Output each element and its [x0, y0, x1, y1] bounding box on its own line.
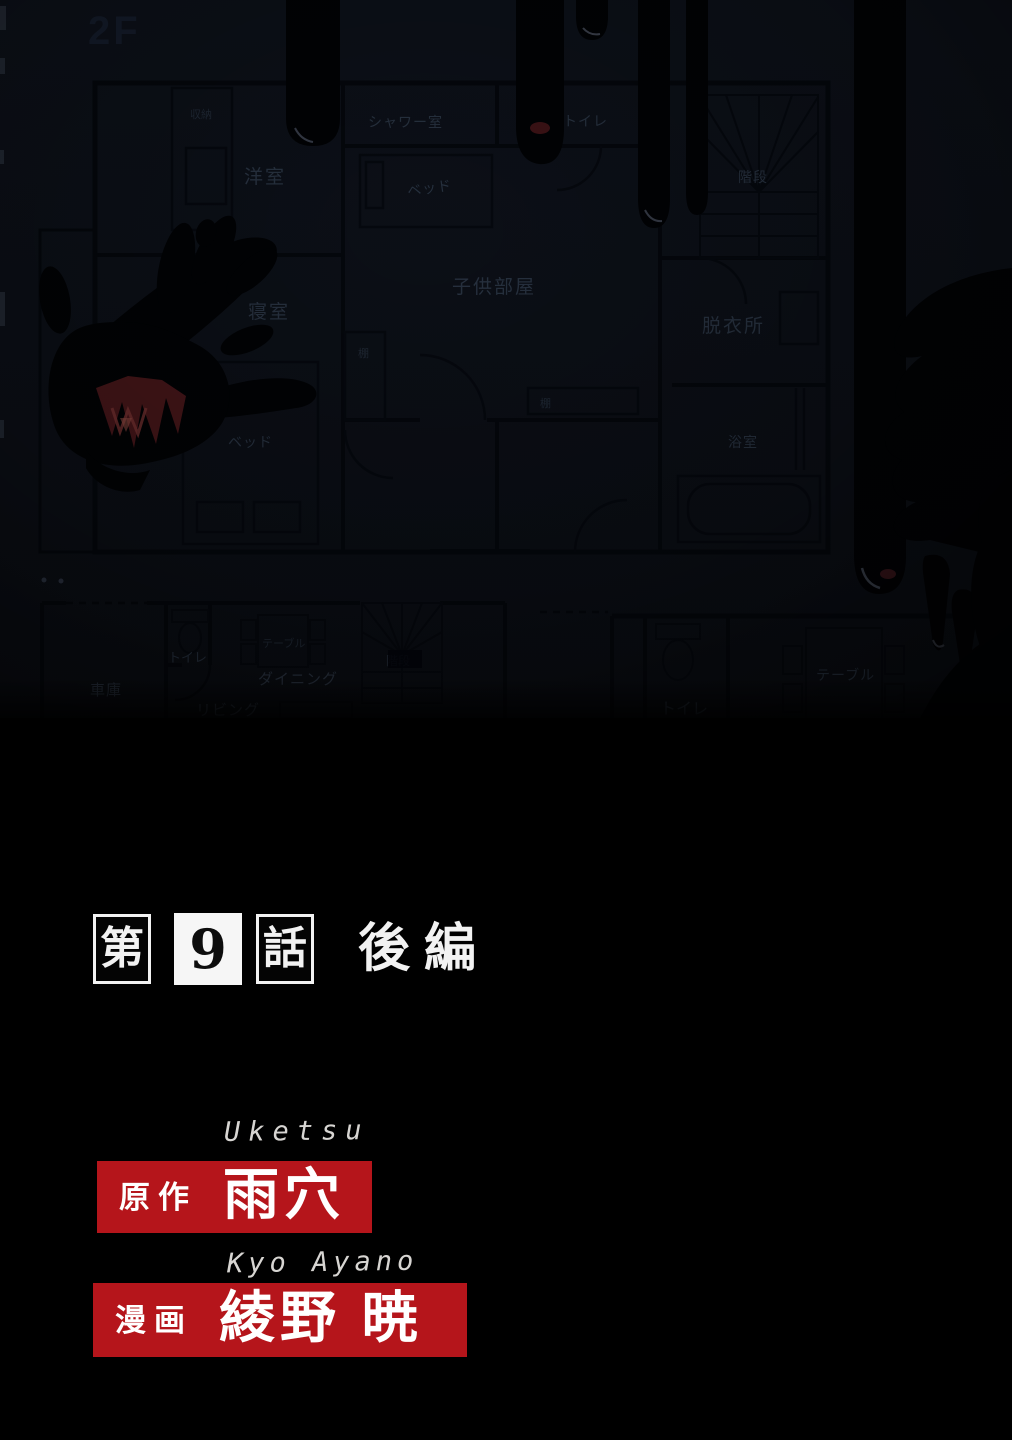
episode-suffix: 話	[263, 927, 307, 971]
episode-title-row: 第 9 話 後編	[93, 913, 490, 985]
episode-number-box: 9	[174, 913, 242, 985]
episode-suffix-box: 話	[256, 914, 314, 984]
credit-artist-box: 漫画 綾野 暁	[93, 1283, 467, 1357]
credit-artist-romaji: Kyo Ayano	[227, 1246, 419, 1280]
credit-original-role: 原作	[119, 1182, 197, 1213]
floorplan-svg: 2F	[0, 0, 1012, 718]
episode-part-title: 後編	[358, 923, 490, 975]
credit-artist-name: 綾野 暁	[219, 1290, 423, 1350]
credit-artist-role: 漫画	[115, 1305, 193, 1336]
episode-prefix-box: 第	[93, 914, 151, 984]
manga-title-page: 2F	[0, 0, 1012, 1440]
credit-original-romaji: Uketsu	[224, 1115, 370, 1148]
episode-number: 9	[189, 917, 227, 981]
episode-prefix: 第	[100, 927, 144, 971]
bottom-fade	[0, 678, 1012, 718]
credit-original-box: 原作 雨穴	[97, 1161, 372, 1233]
floorplan-panel: 2F	[0, 0, 1012, 718]
vignette-overlay	[0, 0, 1012, 718]
credit-original-name: 雨穴	[223, 1167, 345, 1227]
